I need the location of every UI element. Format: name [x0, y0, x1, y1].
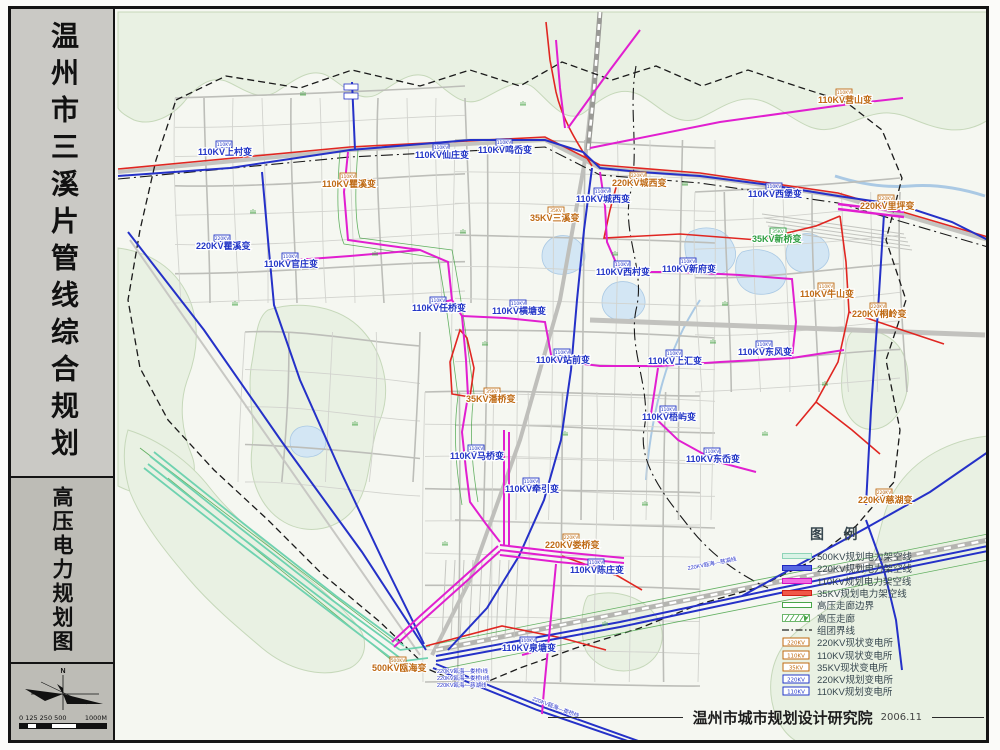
plan-date: 2006.11	[881, 712, 922, 723]
scale-unit: 1000M	[85, 714, 107, 722]
legend-swatch-icon: 110KV	[782, 650, 812, 660]
legend-item-label: 110KV规划变电所	[817, 684, 892, 698]
legend-swatch-icon	[782, 563, 812, 573]
legend-swatch-icon: 110KV	[782, 686, 812, 696]
substation-label: 110KV城西变	[576, 193, 630, 204]
substation-label: 110KV上村变	[198, 146, 252, 157]
legend-swatch-icon: 220KV	[782, 674, 812, 684]
legend-swatch-icon	[782, 551, 812, 561]
legend-item: 220KV规划电力架空线	[782, 562, 987, 574]
legend-item: 500KV规划电力架空线	[782, 550, 987, 562]
scale-strip	[19, 723, 107, 729]
substation-label: 220KV娄桥变	[545, 539, 600, 550]
substation-label: 110KV瞿溪变	[322, 178, 376, 189]
institute-name: 温州市城市规划设计研究院	[693, 707, 873, 728]
legend-swatch-icon	[782, 600, 812, 610]
sidebar: 温州市三溪片管线综合规划 高压电力规划图 N 0 125 250 500 100…	[11, 9, 115, 740]
legend-item: 组团界线	[782, 624, 987, 636]
substation-label: 110KV站前变	[536, 354, 590, 365]
legend-item: 220KV220KV规划变电所	[782, 673, 987, 685]
substation-label: 110KV仙庄变	[415, 149, 469, 160]
attribution-rule-left	[548, 717, 683, 719]
line-name-label: 220KV瓯海—娄桥II线	[437, 674, 490, 682]
legend-item: 110KV规划电力架空线	[782, 575, 987, 587]
substation-label: 110KV西堡变	[748, 188, 802, 199]
plan-title: 温州市三溪片管线综合规划	[42, 21, 82, 465]
sheet-title: 高压电力规划图	[47, 486, 77, 654]
poster-page: 110KV110KV营山变110KV110KV瞿溪变220KV220KV城西变3…	[0, 0, 1000, 750]
substation-label: 110KV东岙变	[686, 453, 740, 464]
substation-label: 110KV东风变	[738, 346, 792, 357]
substation-label: 110KV梧屿变	[642, 411, 696, 422]
attribution-bar: 温州市城市规划设计研究院 2006.11	[548, 707, 984, 728]
legend-rows: 500KV规划电力架空线220KV规划电力架空线110KV规划电力架空线35KV…	[782, 550, 987, 698]
line-name-label: 220KV瓯海—娄桥I线	[437, 667, 489, 675]
legend-item: 35KV规划电力架空线	[782, 587, 987, 599]
legend-swatch-icon: 220KV	[782, 637, 812, 647]
substation-label: 110KV马桥变	[450, 450, 504, 461]
substation-label: 110KV任桥变	[412, 302, 466, 313]
substation-label: 110KV牵引变	[505, 483, 559, 494]
legend-swatch-icon: 35KV	[782, 662, 812, 672]
substation-label: 110KV官庄变	[264, 258, 318, 269]
legend-swatch-icon	[782, 576, 812, 586]
substation-label: 220KV城西变	[612, 177, 667, 188]
sidebar-compass-block: N 0 125 250 500 1000M	[11, 664, 113, 740]
svg-text:220KV: 220KV	[787, 641, 805, 647]
substation-label: 220KV慈湖变	[858, 494, 913, 505]
substation-label: 110KV泉塘变	[502, 642, 556, 653]
substation-label: 35KV三溪变	[530, 212, 580, 223]
substation-label: 220KV瞿溪变	[196, 240, 251, 251]
legend-panel: 图 例 500KV规划电力架空线220KV规划电力架空线110KV规划电力架空线…	[782, 524, 987, 698]
substation-label: 110KV新府变	[662, 263, 716, 274]
legend-swatch-icon	[782, 588, 812, 598]
legend-item: 110KV110KV现状变电所	[782, 648, 987, 660]
line-name-label: 220KV瓯海—慈湖线	[437, 681, 487, 689]
substation-label: 35KV潘桥变	[466, 393, 516, 404]
substation-label: 110KV陈庄变	[570, 564, 624, 575]
compass-rose-icon: N	[11, 664, 115, 714]
legend-item: 高压走廊	[782, 611, 987, 623]
substation-label: 110KV西村变	[596, 266, 650, 277]
legend-item: 110KV110KV规划变电所	[782, 685, 987, 697]
legend-item: 220KV220KV现状变电所	[782, 636, 987, 648]
substation-label: 110KV营山变	[818, 94, 872, 105]
legend-title: 图 例	[810, 524, 987, 544]
substation-label: 110KV牛山变	[800, 288, 854, 299]
legend-item: 高压走廊边界	[782, 599, 987, 611]
sidebar-title-block: 温州市三溪片管线综合规划	[11, 9, 113, 478]
substation-label: 110KV鸣岙变	[478, 144, 532, 155]
svg-text:35KV: 35KV	[789, 665, 804, 671]
legend-swatch-icon	[782, 613, 812, 623]
substation-label: 500KV瓯海变	[372, 662, 427, 673]
substation-label: 110KV上汇变	[648, 355, 702, 366]
svg-text:110KV: 110KV	[787, 653, 805, 659]
substation-label: 110KV横塘变	[492, 305, 546, 316]
legend-swatch-icon	[782, 625, 812, 635]
attribution-rule-right	[932, 717, 984, 719]
substation-label: 220KV里坪变	[860, 200, 915, 211]
scale-bar: 0 125 250 500 1000M	[19, 714, 107, 729]
substation-label: 220KV桐岭变	[852, 308, 907, 319]
sidebar-subtitle-block: 高压电力规划图	[11, 478, 113, 664]
svg-text:220KV: 220KV	[787, 678, 805, 684]
legend-item: 35KV35KV现状变电所	[782, 661, 987, 673]
substation-label: 35KV新桥变	[752, 233, 802, 244]
scale-numbers: 0 125 250 500	[19, 714, 67, 722]
compass-north-label: N	[60, 668, 65, 675]
svg-text:110KV: 110KV	[787, 690, 805, 696]
